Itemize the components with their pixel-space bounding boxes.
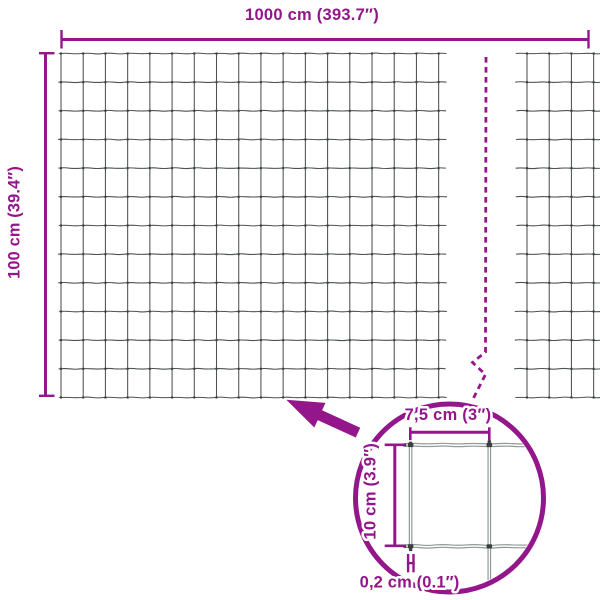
svg-text:0,2 cm (0.1″): 0,2 cm (0.1″) [360,573,460,591]
svg-text:100 cm (39.4″): 100 cm (39.4″) [6,166,24,279]
svg-text:7,5 cm (3″): 7,5 cm (3″) [405,406,492,424]
svg-text:1000 cm (393.7″): 1000 cm (393.7″) [245,6,379,24]
svg-text:10 cm (3.9″): 10 cm (3.9″) [361,443,380,540]
